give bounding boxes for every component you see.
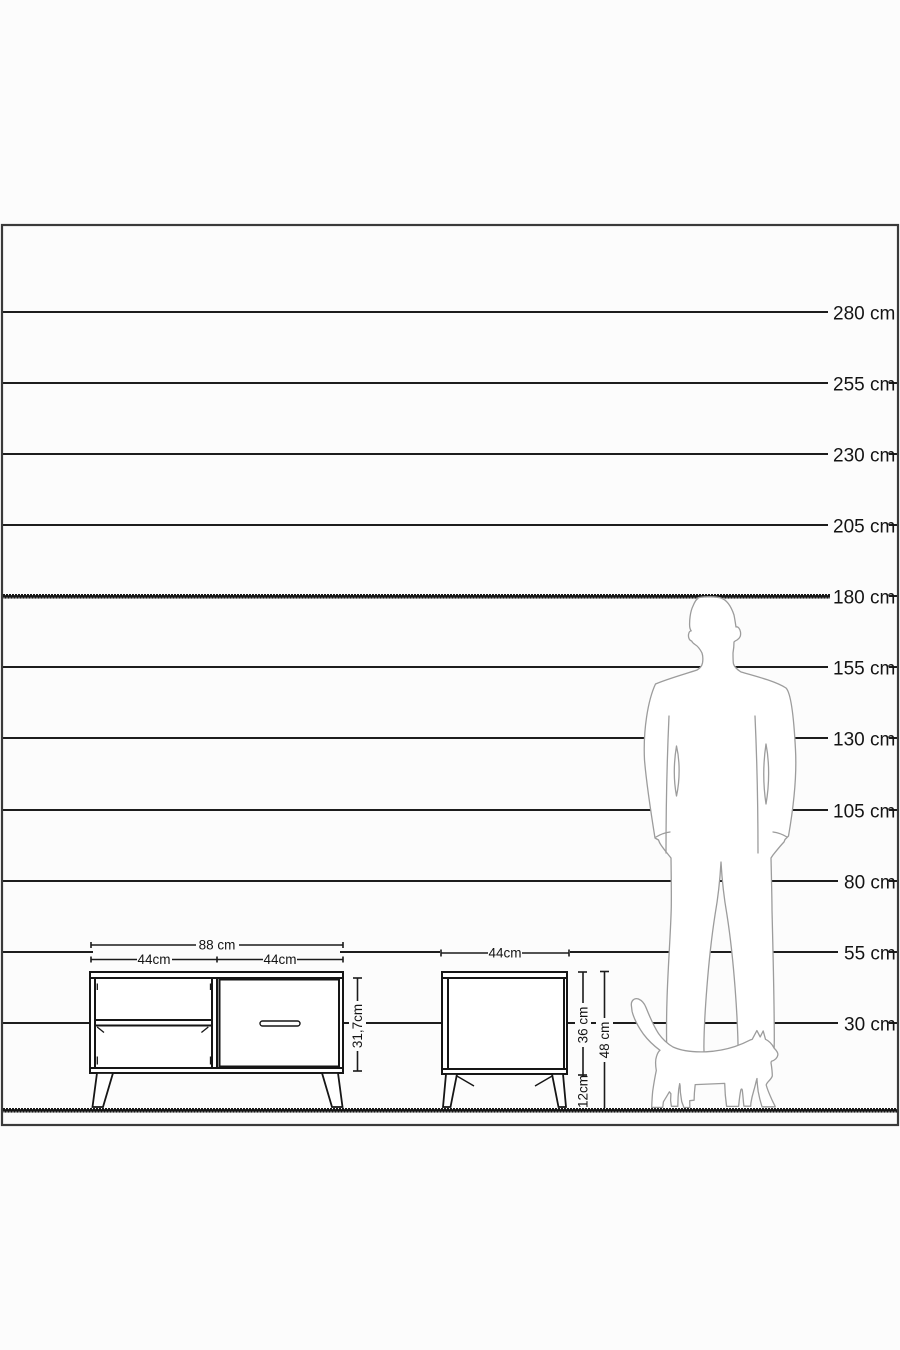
svg-text:44cm: 44cm bbox=[488, 946, 521, 961]
svg-text:48 cm: 48 cm bbox=[597, 1022, 612, 1059]
svg-text:12cm: 12cm bbox=[576, 1075, 591, 1108]
svg-text:80 cm: 80 cm bbox=[844, 873, 896, 894]
svg-text:44cm: 44cm bbox=[263, 952, 296, 967]
svg-text:130 cm: 130 cm bbox=[833, 730, 895, 751]
svg-text:155 cm: 155 cm bbox=[833, 659, 895, 680]
svg-text:230 cm: 230 cm bbox=[833, 446, 895, 467]
svg-text:30 cm: 30 cm bbox=[844, 1015, 896, 1036]
svg-text:255 cm: 255 cm bbox=[833, 375, 895, 396]
svg-text:280 cm: 280 cm bbox=[833, 304, 895, 325]
svg-text:205 cm: 205 cm bbox=[833, 517, 895, 538]
svg-text:31,7cm: 31,7cm bbox=[350, 1004, 365, 1048]
svg-text:88 cm: 88 cm bbox=[199, 938, 236, 953]
svg-text:44cm: 44cm bbox=[137, 952, 170, 967]
svg-text:180 cm: 180 cm bbox=[833, 588, 895, 609]
svg-text:36 cm: 36 cm bbox=[576, 1007, 591, 1044]
svg-text:55 cm: 55 cm bbox=[844, 944, 896, 965]
svg-text:105 cm: 105 cm bbox=[833, 802, 895, 823]
